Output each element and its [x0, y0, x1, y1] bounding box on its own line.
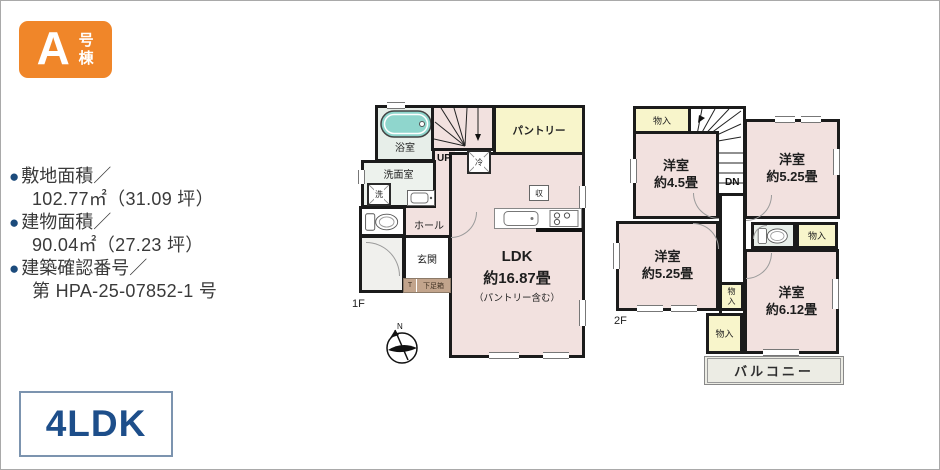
room-hall-label: ホール [414, 217, 444, 232]
closet-label: 物入 [715, 327, 733, 340]
porch [359, 235, 405, 293]
spec-item-land: ● 敷地面積／ 102.77㎡（31.09 坪） [9, 165, 319, 211]
door-arc [366, 242, 400, 276]
room-entrance: 玄関 [403, 235, 451, 281]
bullet-icon: ● [9, 257, 19, 280]
room-size: 約5.25畳 [642, 266, 693, 283]
spec-value: 第 HPA-25-07852-1 号 [9, 280, 319, 303]
floor-label-2f: 2F [614, 315, 627, 327]
spec-label: 建物面積／ [21, 211, 111, 234]
window [543, 352, 569, 359]
window [579, 300, 586, 326]
window [832, 279, 839, 309]
window [358, 170, 365, 184]
ldk-note: （パントリー含む） [474, 290, 560, 304]
room-45-label: 洋室 約4.5畳 [654, 158, 698, 192]
room-size: 約5.25畳 [766, 169, 817, 186]
north-arrow-icon: N [379, 322, 425, 368]
room-pantry: パントリー [493, 105, 585, 155]
spec-value: 90.04㎡（27.23 坪） [9, 234, 319, 257]
room-name: 洋室 [766, 152, 817, 169]
ldk-size: 約16.87畳 [474, 268, 560, 290]
room-name: 洋室 [654, 158, 698, 175]
stairs-down-label: DN [725, 177, 739, 188]
spec-item-building: ● 建物面積／ 90.04㎡（27.23 坪） [9, 211, 319, 257]
window [763, 349, 799, 356]
spec-label: 建築確認番号／ [21, 257, 147, 280]
closet-mid-small: 物入 [719, 282, 744, 311]
closet-label: 物入 [727, 287, 736, 305]
layout-type-box: 4LDK [19, 391, 173, 457]
building-badge: A 号棟 [19, 21, 112, 78]
washer-box: 洗 [367, 183, 391, 206]
window [630, 159, 637, 183]
building-suffix: 号棟 [78, 32, 95, 68]
property-specs: ● 敷地面積／ 102.77㎡（31.09 坪） ● 建物面積／ 90.04㎡（… [9, 165, 319, 303]
fridge-box: 冷 [467, 150, 491, 174]
shoe-cabinet-t: T [404, 279, 416, 292]
window [579, 186, 586, 208]
room-ldk-label: LDK 約16.87畳 （パントリー含む） [474, 246, 560, 304]
room-toilet-1f [359, 206, 406, 237]
room-525-top-label: 洋室 約5.25畳 [766, 152, 817, 186]
window [833, 149, 840, 175]
closet-label: 物入 [653, 114, 671, 127]
floor-plan-2f: 物入 DN [613, 101, 849, 393]
stairs-up [431, 105, 495, 151]
shoe-cabinet-label: 下足箱 [417, 279, 450, 292]
balcony-label: バルコニー [734, 361, 814, 380]
spec-label: 敷地面積／ [21, 165, 111, 188]
room-bath-label: 浴室 [395, 139, 415, 154]
closet-label: 物入 [808, 229, 826, 242]
window [671, 305, 697, 312]
storage-label: 収 [535, 188, 543, 199]
room-washroom-label: 洗面室 [384, 166, 414, 181]
stairs-up-icon [434, 108, 492, 148]
bathtub-icon [380, 110, 432, 138]
fridge-label: 冷 [474, 157, 484, 168]
closet-mid: 物入 [706, 313, 743, 354]
ldk-name: LDK [474, 246, 560, 268]
window [637, 305, 663, 312]
room-ldk: LDK 約16.87畳 （パントリー含む） [449, 152, 585, 358]
stairs-up-label: UP [437, 153, 451, 164]
toilet-icon [364, 211, 402, 233]
shoe-cabinet: T 下足箱 [403, 278, 451, 293]
balcony: バルコニー [704, 356, 844, 385]
floor-label-1f: 1F [352, 298, 365, 310]
window [489, 352, 519, 359]
room-pantry-label: パントリー [512, 123, 565, 138]
window [387, 102, 405, 109]
room-size: 約6.12畳 [766, 302, 817, 319]
building-letter: A [37, 25, 70, 71]
closet-right: 物入 [796, 222, 838, 249]
room-525-left-label: 洋室 約5.25畳 [642, 249, 693, 283]
window [613, 243, 620, 269]
room-washroom: 洗面室 洗 [361, 160, 436, 208]
storage-box: 収 [529, 185, 549, 201]
floor-plan-1f: ホール 浴室 UP [351, 100, 587, 375]
washer-label: 洗 [374, 189, 384, 200]
compass-n-label: N [397, 322, 403, 331]
flyer-page: A 号棟 ● 敷地面積／ 102.77㎡（31.09 坪） ● 建物面積／ 90… [0, 0, 940, 470]
balcony-inner: バルコニー [707, 358, 841, 383]
window [775, 116, 795, 123]
room-entrance-label: 玄関 [417, 251, 437, 266]
room-name: 洋室 [766, 285, 817, 302]
room-size: 約4.5畳 [654, 175, 698, 192]
room-bath: 浴室 [375, 105, 435, 162]
room-612-label: 洋室 約6.12畳 [766, 285, 817, 319]
room-name: 洋室 [642, 249, 693, 266]
layout-type-label: 4LDK [46, 403, 147, 445]
closet-top-left: 物入 [633, 106, 691, 134]
window [801, 116, 821, 123]
bullet-icon: ● [9, 165, 19, 188]
bullet-icon: ● [9, 211, 19, 234]
spec-value: 102.77㎡（31.09 坪） [9, 188, 319, 211]
kitchen-counter-icon [494, 208, 582, 232]
vanity-sink-icon [407, 190, 435, 206]
spec-item-confirmation: ● 建築確認番号／ 第 HPA-25-07852-1 号 [9, 257, 319, 303]
